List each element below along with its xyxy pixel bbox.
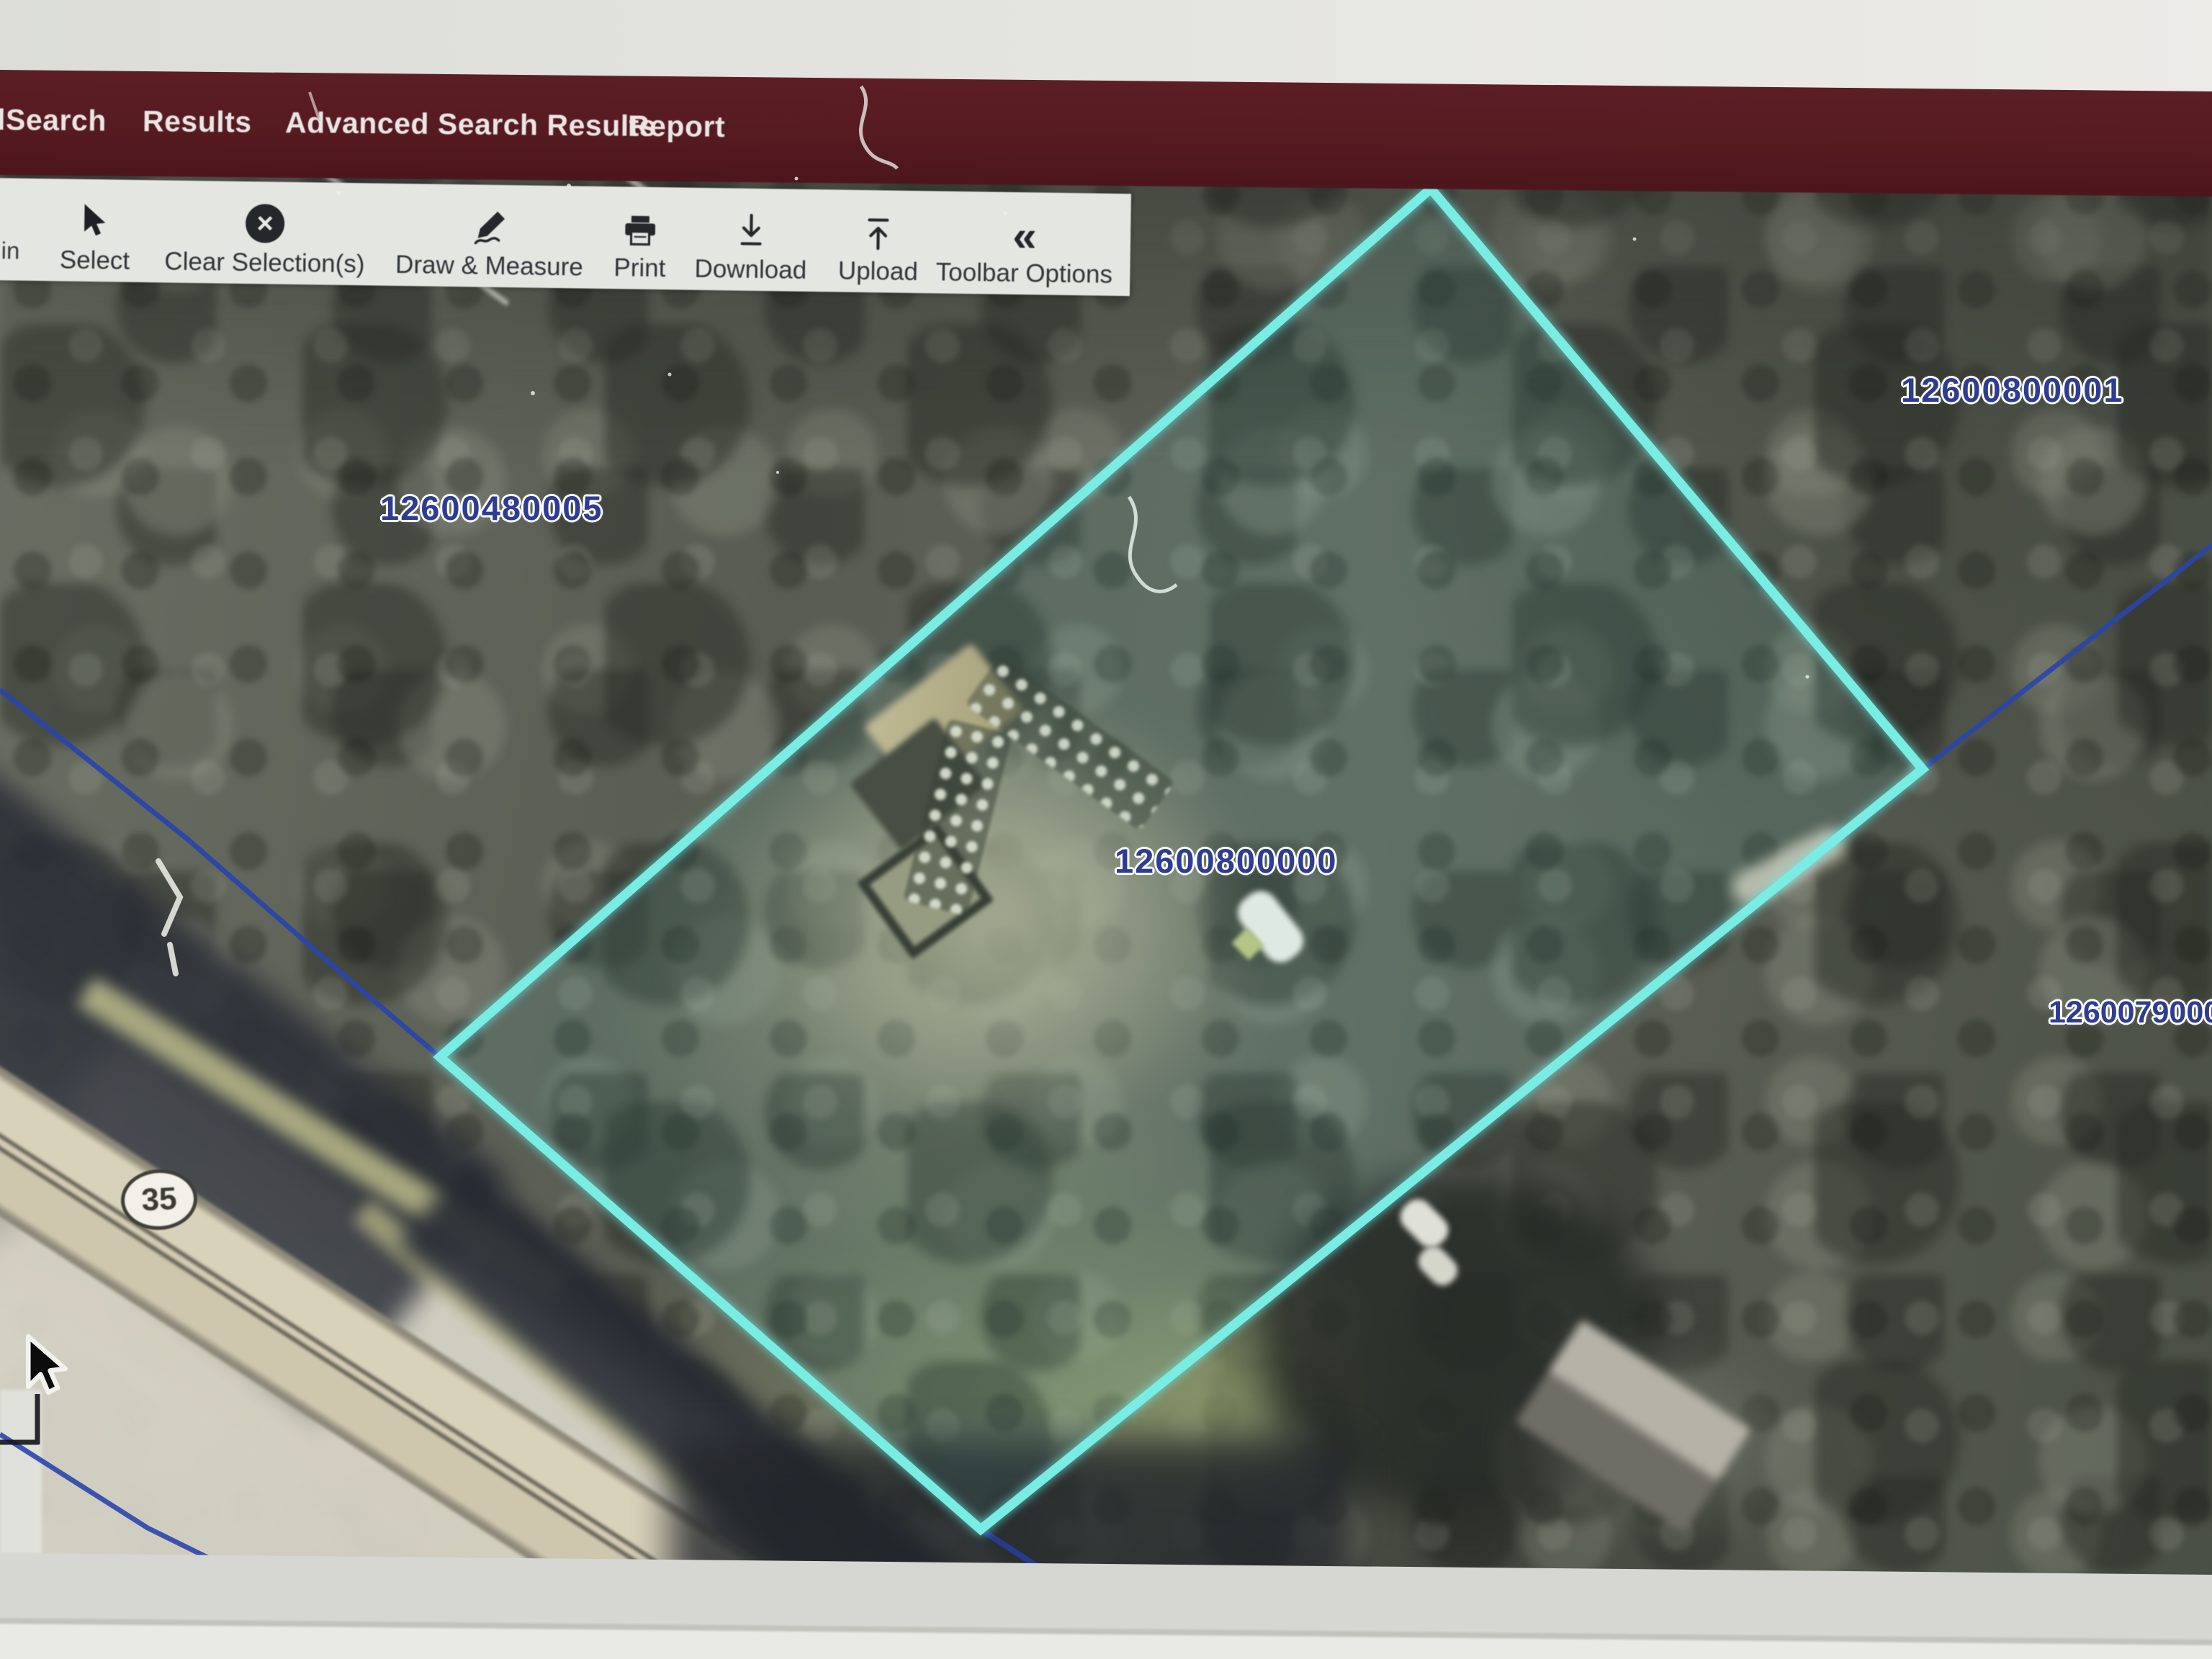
upload-button[interactable]: Upload (838, 211, 919, 285)
screen-photo: 12600480005 12600800001 12600800000 1260… (0, 0, 2212, 1659)
tab-report[interactable]: Report (628, 109, 726, 143)
print-label: Print (613, 255, 665, 281)
tab-advanced-search-results[interactable]: Advanced Search Results (285, 106, 657, 143)
clear-selections-label: Clear Selection(s) (164, 248, 365, 276)
route-number: 35 (140, 1181, 178, 1218)
map-toolbar: in Select × Clear Selection(s) Draw & Me… (0, 178, 1131, 296)
print-button[interactable]: Print (613, 207, 666, 281)
toolbar-options-label: Toolbar Options (936, 259, 1113, 287)
upload-label: Upload (838, 258, 918, 285)
draw-measure-label: Draw & Measure (395, 252, 583, 280)
clipped-toolbar-item[interactable]: in (1, 237, 19, 264)
parcel-label: 12600800001 (1901, 370, 2124, 410)
parcel-label: 12600480005 (380, 488, 603, 528)
map-white-patch (0, 1390, 42, 1554)
mouse-cursor-icon (20, 1334, 71, 1402)
map-canvas[interactable] (0, 65, 2212, 1659)
pencil-icon (470, 205, 510, 246)
clear-selections-button[interactable]: × Clear Selection(s) (164, 201, 366, 276)
circle-x-icon: × (246, 202, 285, 243)
download-label: Download (694, 256, 806, 283)
printer-icon (621, 207, 660, 248)
draw-measure-button[interactable]: Draw & Measure (395, 204, 584, 280)
select-label: Select (60, 247, 130, 273)
download-button[interactable]: Download (694, 209, 807, 283)
upload-arrow-icon (862, 211, 896, 252)
tab-results[interactable]: Results (143, 104, 252, 139)
select-button[interactable]: Select (60, 199, 131, 273)
toolbar-options-button[interactable]: « Toolbar Options (936, 212, 1114, 287)
parcel-label-clipped: 12600790000 (2049, 995, 2212, 1030)
download-arrow-icon (734, 209, 768, 250)
cursor-arrow-icon (81, 200, 110, 241)
tab-search[interactable]: Search (6, 103, 107, 138)
double-chevron-left-icon: « (1012, 213, 1037, 253)
parcel-label: 12600800000 (1115, 841, 1338, 881)
